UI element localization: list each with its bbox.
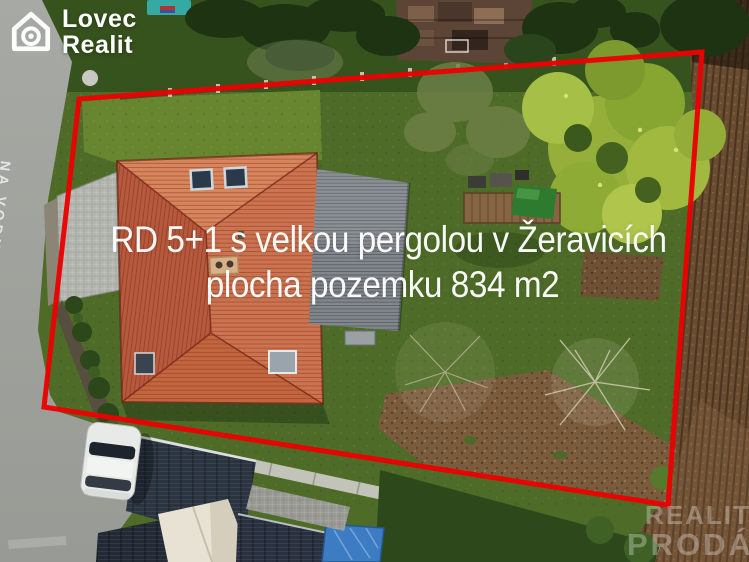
logo-text-line1: Lovec [62,6,137,32]
watermark-line2: PRODÁ [627,527,749,562]
logo-house-icon [8,9,54,55]
leafless-tree-2 [395,322,495,422]
white-car [79,421,158,506]
agency-logo: Lovec Realit [8,6,137,58]
pool-tarp [322,524,384,562]
listing-photo: Lovec Realit RD 5+1 s velkou pergolou v … [0,0,749,562]
utility-box [345,331,375,345]
listing-title: RD 5+1 s velkou pergolou v Žeravicích [51,219,725,261]
logo-text: Lovec Realit [62,6,137,58]
listing-subtitle: plocha pozemku 834 m2 [45,264,719,306]
logo-text-line2: Realit [62,32,137,58]
teal-structure [147,0,191,15]
